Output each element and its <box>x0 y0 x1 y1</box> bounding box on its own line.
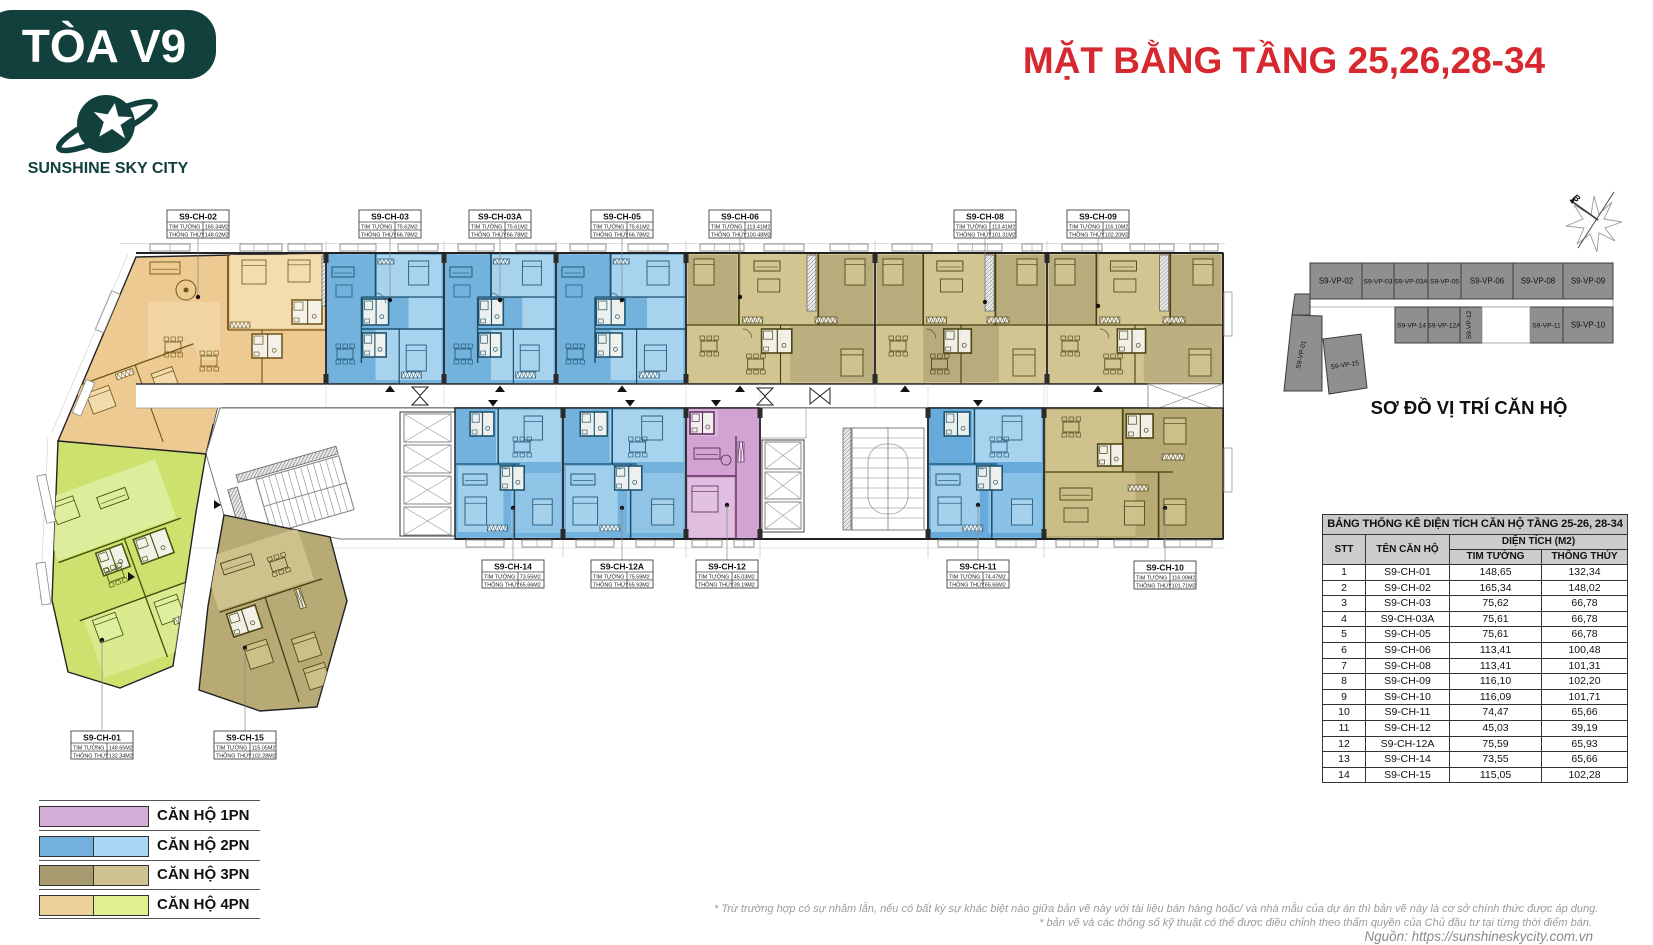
svg-text:101.71M2: 101.71M2 <box>1172 584 1196 590</box>
svg-text:S9-VP-10: S9-VP-10 <box>1571 321 1606 330</box>
svg-text:TIM TƯỜNG: TIM TƯỜNG <box>949 574 980 581</box>
svg-text:113.41M2: 113.41M2 <box>747 225 771 231</box>
svg-text:THÔNG THỦY: THÔNG THỦY <box>1069 232 1105 239</box>
svg-text:165.34M2: 165.34M2 <box>205 225 229 231</box>
svg-text:66.78M2: 66.78M2 <box>629 233 650 239</box>
svg-text:S9-CH-10: S9-CH-10 <box>1146 563 1184 573</box>
svg-text:THÔNG THỦY: THÔNG THỦY <box>169 232 205 239</box>
svg-text:S9-CH-05: S9-CH-05 <box>603 212 641 222</box>
svg-text:S9-VP-05: S9-VP-05 <box>1430 279 1459 286</box>
svg-text:45.03M2: 45.03M2 <box>734 575 755 581</box>
svg-text:75.62M2: 75.62M2 <box>397 225 418 231</box>
svg-text:101.31M2: 101.31M2 <box>992 233 1016 239</box>
svg-text:S9-CH-06: S9-CH-06 <box>721 212 759 222</box>
svg-text:S9-VP-14: S9-VP-14 <box>1397 323 1426 330</box>
svg-text:S9-CH-14: S9-CH-14 <box>494 562 532 572</box>
svg-text:S9-VP-03A: S9-VP-03A <box>1394 279 1428 286</box>
svg-text:113.41M2: 113.41M2 <box>992 225 1016 231</box>
svg-text:132.34M2: 132.34M2 <box>109 754 133 760</box>
svg-text:S9-CH-03: S9-CH-03 <box>371 212 409 222</box>
svg-text:THÔNG THỦY: THÔNG THỦY <box>1136 583 1172 590</box>
svg-text:TIM TƯỜNG: TIM TƯỜNG <box>169 224 200 231</box>
svg-text:65.66M2: 65.66M2 <box>985 583 1006 589</box>
svg-text:S9-CH-12: S9-CH-12 <box>708 562 746 572</box>
svg-text:39.19M2: 39.19M2 <box>734 583 755 589</box>
svg-text:S9-VP-02: S9-VP-02 <box>1319 277 1353 286</box>
svg-text:75.59M2: 75.59M2 <box>629 575 650 581</box>
svg-text:66.78M2: 66.78M2 <box>397 233 418 239</box>
svg-text:148.65M2: 148.65M2 <box>109 746 133 752</box>
svg-text:THÔNG THỦY: THÔNG THỦY <box>471 232 507 239</box>
svg-text:116.09M2: 116.09M2 <box>1172 576 1196 582</box>
svg-text:TIM TƯỜNG: TIM TƯỜNG <box>471 224 502 231</box>
svg-text:S9-VP-12A: S9-VP-12A <box>1427 323 1461 330</box>
svg-text:THÔNG THỦY: THÔNG THỦY <box>216 753 252 760</box>
svg-text:102.20M2: 102.20M2 <box>1105 233 1129 239</box>
svg-text:65.93M2: 65.93M2 <box>629 583 650 589</box>
svg-text:S9-VP-03: S9-VP-03 <box>1364 279 1393 286</box>
svg-text:TÒA V9: TÒA V9 <box>22 20 186 72</box>
svg-text:S9-CH-12A: S9-CH-12A <box>600 562 644 572</box>
svg-text:73.55M2: 73.55M2 <box>520 575 541 581</box>
svg-text:TIM TƯỜNG: TIM TƯỜNG <box>593 574 624 581</box>
svg-text:S9-VP-11: S9-VP-11 <box>1532 323 1561 330</box>
svg-text:TIM TƯỜNG: TIM TƯỜNG <box>361 224 392 231</box>
svg-text:TIM TƯỜNG: TIM TƯỜNG <box>593 224 624 231</box>
svg-text:TIM TƯỜNG: TIM TƯỜNG <box>698 574 729 581</box>
svg-text:115.05M2: 115.05M2 <box>252 746 276 752</box>
svg-text:MẶT BẰNG TẦNG 25,26,28-34: MẶT BẰNG TẦNG 25,26,28-34 <box>1023 40 1546 81</box>
svg-text:S9-VP-06: S9-VP-06 <box>1470 277 1505 286</box>
svg-text:TIM TƯỜNG: TIM TƯỜNG <box>73 745 104 752</box>
svg-text:THÔNG THỦY: THÔNG THỦY <box>956 232 992 239</box>
svg-text:SƠ ĐỒ VỊ TRÍ CĂN HỘ: SƠ ĐỒ VỊ TRÍ CĂN HỘ <box>1371 397 1568 418</box>
svg-text:SUNSHINE SKY CITY: SUNSHINE SKY CITY <box>28 160 189 177</box>
svg-text:S9-CH-02: S9-CH-02 <box>179 212 217 222</box>
svg-text:75.61M2: 75.61M2 <box>507 225 528 231</box>
svg-text:S9-CH-08: S9-CH-08 <box>966 212 1004 222</box>
svg-text:S9-CH-15: S9-CH-15 <box>226 733 264 743</box>
svg-text:116.10M2: 116.10M2 <box>1105 225 1129 231</box>
svg-text:102.28M2: 102.28M2 <box>252 754 276 760</box>
svg-text:TIM TƯỜNG: TIM TƯỜNG <box>1136 575 1167 582</box>
svg-text:S9-VP-12: S9-VP-12 <box>1466 310 1473 339</box>
svg-text:THÔNG THỦY: THÔNG THỦY <box>711 232 747 239</box>
svg-text:S9-CH-03A: S9-CH-03A <box>478 212 522 222</box>
svg-text:100.48M2: 100.48M2 <box>747 233 771 239</box>
svg-text:TIM TƯỜNG: TIM TƯỜNG <box>216 745 247 752</box>
svg-text:S9-VP-08: S9-VP-08 <box>1521 277 1556 286</box>
svg-text:THÔNG THỦY: THÔNG THỦY <box>593 582 629 589</box>
svg-text:S9-CH-01: S9-CH-01 <box>83 733 121 743</box>
svg-text:THÔNG THỦY: THÔNG THỦY <box>361 232 397 239</box>
svg-text:THÔNG THỦY: THÔNG THỦY <box>73 753 109 760</box>
svg-text:THÔNG THỦY: THÔNG THỦY <box>593 232 629 239</box>
svg-text:THÔNG THỦY: THÔNG THỦY <box>949 582 985 589</box>
svg-text:TIM TƯỜNG: TIM TƯỜNG <box>711 224 742 231</box>
svg-text:65.66M2: 65.66M2 <box>520 583 541 589</box>
svg-text:148.02M2: 148.02M2 <box>205 233 229 239</box>
svg-text:S9-CH-11: S9-CH-11 <box>959 562 997 572</box>
svg-text:66.78M2: 66.78M2 <box>507 233 528 239</box>
svg-text:S9-VP-09: S9-VP-09 <box>1571 277 1606 286</box>
svg-text:TIM TƯỜNG: TIM TƯỜNG <box>484 574 515 581</box>
svg-text:74.47M2: 74.47M2 <box>985 575 1006 581</box>
svg-text:THÔNG THỦY: THÔNG THỦY <box>484 582 520 589</box>
svg-text:THÔNG THỦY: THÔNG THỦY <box>698 582 734 589</box>
svg-text:S9-CH-09: S9-CH-09 <box>1079 212 1117 222</box>
svg-text:75.61M2: 75.61M2 <box>629 225 650 231</box>
svg-text:TIM TƯỜNG: TIM TƯỜNG <box>956 224 987 231</box>
svg-text:TIM TƯỜNG: TIM TƯỜNG <box>1069 224 1100 231</box>
